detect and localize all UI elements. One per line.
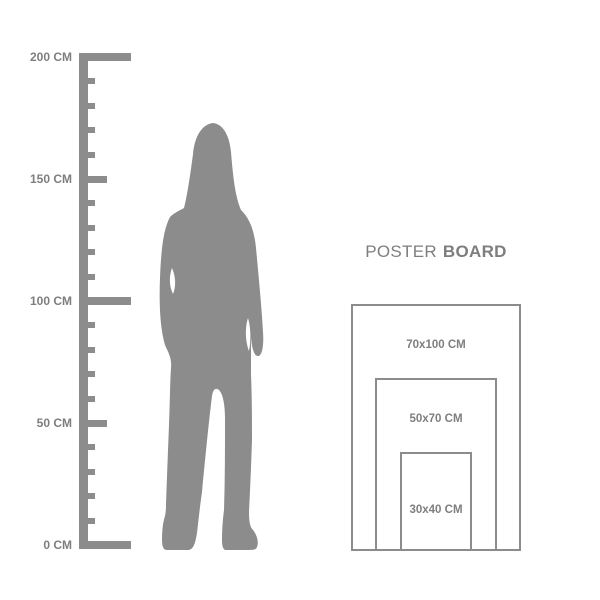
- ruler-tick-100cm: [79, 297, 131, 305]
- ruler-tick-140cm: [79, 200, 95, 206]
- ruler-label-200cm: 200 CM: [0, 50, 72, 64]
- poster-size-label-70x100: 70x100 CM: [406, 339, 465, 351]
- woman-silhouette: [155, 120, 270, 555]
- ruler-label-150cm: 150 CM: [0, 172, 72, 186]
- ruler-tick-180cm: [79, 103, 95, 109]
- poster-title-regular: POSTER: [365, 242, 437, 261]
- poster-size-label-50x70: 50x70 CM: [409, 413, 462, 425]
- ruler-label-100cm: 100 CM: [0, 294, 72, 308]
- ruler-tick-50cm: [79, 420, 107, 427]
- ruler-tick-60cm: [79, 396, 95, 402]
- ruler-tick-150cm: [79, 176, 107, 183]
- poster-board-title: POSTERBOARD: [351, 243, 521, 261]
- ruler-tick-190cm: [79, 78, 95, 84]
- size-comparison-diagram: 200 CM150 CM100 CM50 CM0 CM POSTERBOARD …: [0, 0, 600, 600]
- ruler-tick-170cm: [79, 127, 95, 133]
- ruler-tick-130cm: [79, 225, 95, 231]
- poster-size-label-30x40: 30x40 CM: [409, 504, 462, 516]
- ruler-tick-10cm: [79, 518, 95, 524]
- ruler-tick-80cm: [79, 347, 95, 353]
- poster-title-bold: BOARD: [443, 242, 507, 261]
- ruler-tick-160cm: [79, 152, 95, 158]
- ruler-tick-70cm: [79, 371, 95, 377]
- ruler-tick-0cm: [79, 541, 131, 549]
- ruler-label-0cm: 0 CM: [0, 538, 72, 552]
- ruler-tick-120cm: [79, 249, 95, 255]
- ruler-tick-90cm: [79, 322, 95, 328]
- ruler-tick-30cm: [79, 469, 95, 475]
- ruler-tick-40cm: [79, 444, 95, 450]
- ruler-tick-200cm: [79, 53, 131, 61]
- poster-rect-30x40: [400, 452, 473, 551]
- ruler-tick-110cm: [79, 274, 95, 280]
- ruler-label-50cm: 50 CM: [0, 416, 72, 430]
- ruler-tick-20cm: [79, 493, 95, 499]
